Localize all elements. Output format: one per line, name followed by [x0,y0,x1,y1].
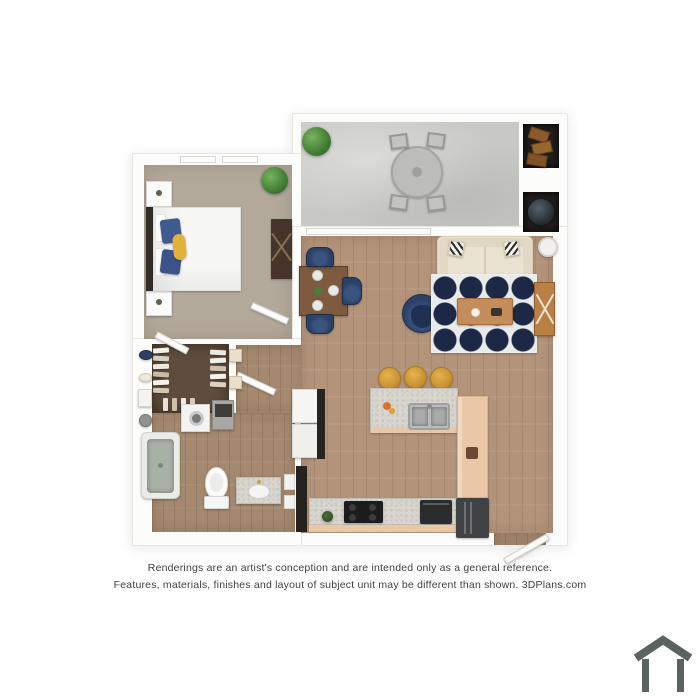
hanging-clothes [163,398,168,411]
bathtub-drain [158,463,163,468]
closet-tray [138,389,152,407]
hanging-clothes [210,374,226,380]
bar-stool [404,366,427,389]
dryer [212,400,234,430]
bathroom-vanity [236,477,281,504]
bed-pillow-yellow [172,233,187,260]
hanging-clothes [153,380,169,386]
dining-chair [342,277,362,305]
linen-shelf [284,495,295,509]
burner [369,514,376,521]
disclaimer-line1: Renderings are an artist's conception an… [0,560,700,577]
counter-edge [458,397,462,497]
patio-chair [389,133,409,150]
hanging-clothes [210,382,226,388]
coffee-table-tray [491,308,502,316]
nightstand-decor [156,190,162,196]
bar-stool [378,367,401,390]
patio-chair [389,194,409,211]
pantry-shelves [296,466,307,532]
cooktop [344,501,383,523]
bed-headboard [146,207,153,291]
patio-plant [302,127,331,156]
bar-stool [430,367,453,390]
bedroom-window [222,156,258,163]
hanging-clothes [210,350,226,356]
bathtub [141,432,180,499]
floorplan-image: Renderings are an artist's conception an… [0,0,700,700]
patio-door-window [306,228,431,235]
disclaimer-line2: Features, materials, finishes and layout… [0,577,700,594]
sofa-pillow [448,240,465,257]
dining-chair [306,314,334,334]
oven-handle [423,503,449,505]
patio-table-center [412,167,422,177]
dinner-plate [312,270,323,281]
oven [420,500,452,524]
dining-chair [306,247,334,267]
bedroom-plant [261,167,288,194]
house-logo-icon [633,635,693,695]
floorplan [0,0,700,700]
bedroom-window [180,156,216,163]
sink-faucet [427,404,432,409]
linen-bin [229,376,242,389]
toilet-bowl [205,467,228,499]
washer [181,404,210,432]
double-sink [408,403,450,430]
toilet-seat [210,473,223,492]
disclaimer: Renderings are an artist's conception an… [0,560,700,594]
hanging-clothes [153,388,169,394]
table-centerpiece [314,287,322,295]
coffee-maker [466,447,478,459]
linen-shelf [284,474,295,490]
burner [349,504,356,511]
sofa-arm [523,238,532,279]
burner [369,504,376,511]
dryer-panel [215,404,232,417]
water-heater [527,198,555,226]
hanging-clothes [172,398,177,411]
vanity-sink [248,484,270,499]
vanity-faucet [257,480,261,484]
sink-basin [431,407,447,426]
counter-plant [322,511,333,522]
counter-cabinet-face [309,525,458,532]
hanging-clothes [153,371,169,377]
sink-basin [412,407,428,426]
hanging-clothes [210,358,226,364]
fridge-handle [470,502,472,534]
hanging-clothes [210,366,226,372]
sofa-arm [439,238,448,279]
burner [349,514,356,521]
round-side-table [538,237,558,257]
kitchen-counter-right [457,396,488,498]
dinner-plate [312,300,323,311]
toilet-tank [204,496,229,509]
hanging-clothes [153,356,169,362]
x-side-table [534,282,555,336]
stacked-dryer [292,424,318,458]
fruit-bowl [389,408,395,414]
linen-bin [229,349,242,362]
coffee-table-dish [471,308,480,317]
dining-table [299,266,348,316]
dinner-plate [328,285,339,296]
stacked-washer [292,389,318,423]
patio-chair [426,195,446,212]
utility-shelf-dark [317,389,325,459]
closet-pot [139,414,152,427]
bedroom-dresser [271,219,292,279]
patio-chair [426,132,446,149]
hanging-clothes [153,364,169,370]
closet-basket-cream [139,373,152,382]
fridge-handle [464,502,466,534]
washer-door [189,411,204,426]
refrigerator [456,498,489,538]
coffee-table [457,298,513,325]
sofa-pillow [503,240,520,257]
nightstand-decor [156,299,162,305]
closet-basket-navy [139,350,153,360]
